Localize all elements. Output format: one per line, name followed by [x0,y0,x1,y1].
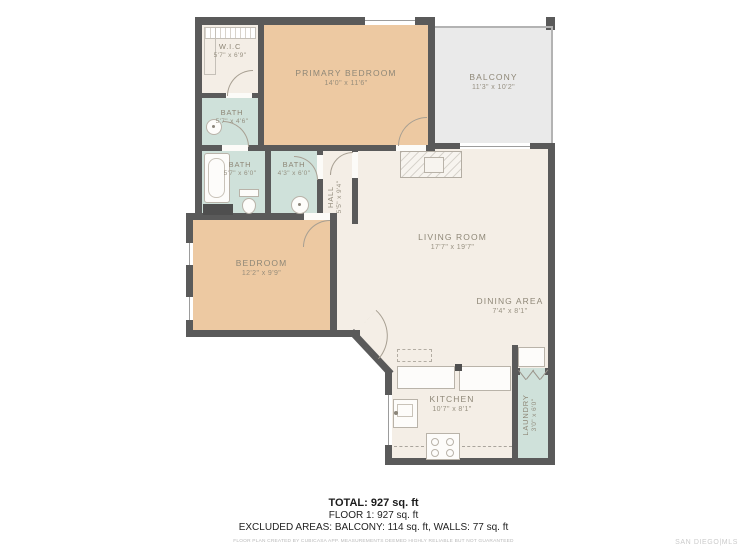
room-dims: 7'4" x 8'1" [440,307,580,316]
nook-cabinet [518,347,545,367]
room-dims: 10'7" x 8'1" [392,405,512,414]
kitchen-counter [397,366,455,389]
excluded-areas: EXCLUDED AREAS: BALCONY: 114 sq. ft, WAL… [0,522,747,533]
room-dims: 12'2" x 9'9" [193,269,330,278]
room-dims: 5'7" x 6'9" [202,52,258,61]
window-bedroom-1 [186,243,193,265]
stove-burner [446,449,454,457]
cabinet-dashed [397,349,432,362]
stove [426,433,460,460]
room-dims: 4'3" x 6'0" [269,170,319,179]
window-primary-top [365,17,415,25]
room-name: KITCHEN [392,394,512,405]
room-dims: 3'0" x 6'0" [531,380,540,450]
label-wic: W.I.C 5'7" x 6'9" [202,42,258,61]
plan-summary: TOTAL: 927 sq. ft FLOOR 1: 927 sq. ft EX… [0,497,747,544]
mls-watermark: SAN DIEGO|MLS [675,539,738,546]
label-bedroom: BEDROOM 12'2" x 9'9" [193,258,330,279]
label-dining-area: DINING AREA 7'4" x 8'1" [440,296,580,317]
label-kitchen: KITCHEN 10'7" x 8'1" [392,394,512,415]
label-hall: HALL 5'5" x 9'4" [326,162,350,232]
wall-bedroom-bottom [186,330,360,337]
window-bedroom-2 [186,297,193,320]
total-area: TOTAL: 927 sq. ft [0,497,747,509]
room-name: BALCONY [435,72,552,83]
upper-cabinet-dashed [394,446,424,447]
wall-top-left [195,17,264,25]
room-name: PRIMARY BEDROOM [264,68,428,79]
wall-left-upper [195,17,202,215]
room-dims: 11'3" x 10'2" [435,83,552,92]
window-kitchen [385,395,392,445]
label-bath-tub: BATH 5'7" x 6'0" [210,160,270,179]
wall-kitchen-bottom [385,458,555,465]
balcony-rail-top [435,26,553,28]
label-living-room: LIVING ROOM 17'7" x 19'7" [357,232,548,253]
room-name: LIVING ROOM [357,232,548,243]
stove-burner [431,449,439,457]
vanity-counter [203,204,233,215]
label-primary-bedroom: PRIMARY BEDROOM 14'0" x 11'6" [264,68,428,89]
room-name: BATH [269,160,319,170]
toilet-tank [239,189,259,197]
fireplace-box [424,157,444,173]
counter-post [455,364,462,371]
disclaimer: FLOOR PLAN CREATED BY CUBICASA APP. MEAS… [0,539,747,544]
room-dims: 14'0" x 11'6" [264,79,428,88]
upper-cabinet-dashed [462,446,512,447]
room-name: BATH [210,160,270,170]
stove-burner [431,438,439,446]
room-name: LAUNDRY [521,380,531,450]
room-name: BEDROOM [193,258,330,269]
kitchen-fridge [459,366,511,391]
sliding-door-balcony [460,143,530,149]
room-dims: 5'7" x 6'0" [210,170,270,179]
floor-area: FLOOR 1: 927 sq. ft [0,510,747,521]
label-bath-primary: BATH 5'7" x 4'6" [202,108,262,127]
wall-balcony-left [428,17,435,151]
label-bath-hall: BATH 4'3" x 6'0" [269,160,319,179]
sink-drain [298,203,301,206]
room-name: DINING AREA [440,296,580,307]
room-dims: 17'7" x 19'7" [357,243,548,252]
room-name: W.I.C [202,42,258,52]
room-dims: 5'7" x 4'6" [202,118,262,127]
label-laundry: LAUNDRY 3'0" x 6'0" [521,380,543,450]
stove-burner [446,438,454,446]
label-balcony: BALCONY 11'3" x 10'2" [435,72,552,93]
room-name: BATH [202,108,262,118]
room-dims: 5'5" x 9'4" [336,162,345,232]
floor-plan: W.I.C 5'7" x 6'9" BATH 5'7" x 4'6" PRIMA… [0,0,747,560]
room-name: HALL [326,162,336,232]
